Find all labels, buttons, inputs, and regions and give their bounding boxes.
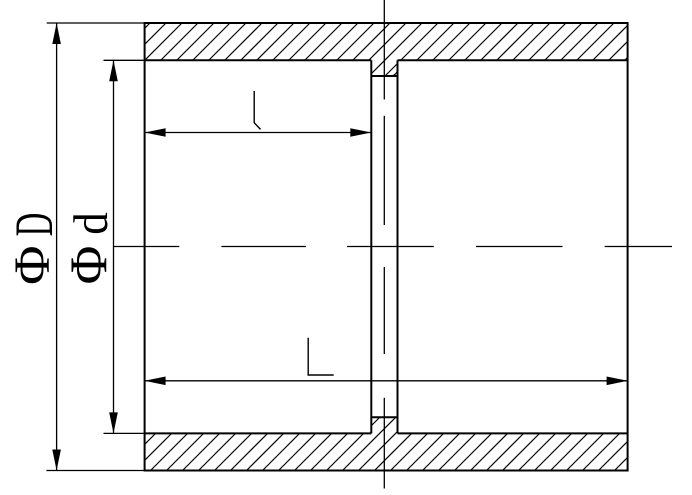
svg-text:D: D	[4, 213, 64, 237]
svg-text:d: d	[64, 212, 118, 234]
svg-text:Φ: Φ	[5, 246, 60, 285]
svg-text:Φ: Φ	[61, 246, 119, 285]
